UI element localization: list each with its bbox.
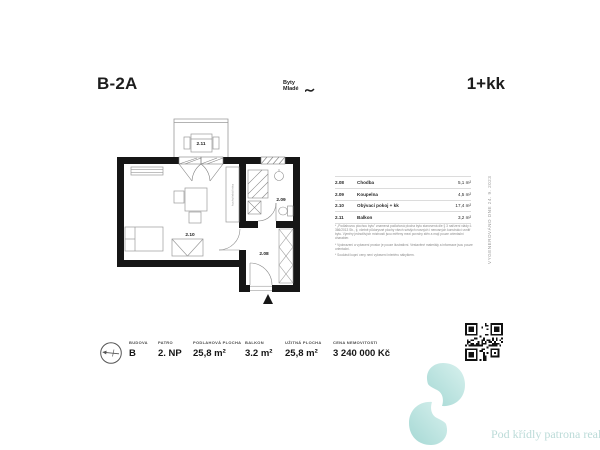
kitchen-counter: kuchyňská linka <box>226 167 239 222</box>
summary-uzitna-plocha: UŽITNÁ PLOCHA 25,8 m² <box>285 340 322 359</box>
room-label-balcony: 2.11 <box>196 141 205 147</box>
room-code: 2.08 <box>335 180 357 185</box>
summary-value: 3.2 m² <box>245 348 272 359</box>
summary-label: PODLAHOVÁ PLOCHA <box>193 340 241 345</box>
shower <box>248 170 268 198</box>
room-name: Obývací pokoj + kk <box>357 203 445 208</box>
room-area: 3,2 m² <box>445 215 471 220</box>
summary-value: B <box>129 348 148 359</box>
table-row: 2.11 Balkon 3,2 m² <box>335 211 471 224</box>
qr-code <box>465 323 503 361</box>
window <box>261 157 285 164</box>
table-row: 2.10 Obývací pokoj + kk 17,4 m² <box>335 200 471 212</box>
room-code: 2.10 <box>335 203 357 208</box>
room-name: Balkon <box>357 215 445 220</box>
watermark-logo-icon <box>398 362 476 446</box>
table-row: 2.09 Koupelna 4,5 m² <box>335 188 471 200</box>
brand-line2: Mladé <box>283 86 299 92</box>
room-area: 17,4 m² <box>445 203 471 208</box>
legend-footnotes: * „Podlahovou plochou bytu" znamená podl… <box>335 224 475 259</box>
summary-label: BUDOVA <box>129 340 148 345</box>
balcony-door <box>179 157 223 181</box>
room-code: 2.11 <box>335 215 357 220</box>
table-row: 2.08 Chodba 5,1 m² <box>335 176 471 188</box>
footnote: * Součástí kupní ceny není vybavení inte… <box>335 253 475 257</box>
room-name: Koupelna <box>357 192 445 197</box>
watermark-text: Pod křídly patrona reali <box>491 427 600 442</box>
toilet <box>279 206 293 216</box>
summary-budova: BUDOVA B <box>129 340 148 359</box>
summary-value: 2. NP <box>158 348 182 359</box>
footnote: * „Podlahovou plochou bytu" znamená podl… <box>335 224 475 241</box>
room-area: 5,1 m² <box>445 180 471 185</box>
room-legend-table: 2.08 Chodba 5,1 m² 2.09 Koupelna 4,5 m² … <box>335 176 471 224</box>
summary-value: 3 240 000 Kč <box>333 348 390 359</box>
summary-label: UŽITNÁ PLOCHA <box>285 340 322 345</box>
summary-label: BALKON <box>245 340 272 345</box>
wardrobe <box>172 239 203 256</box>
room-label-bathroom: 2.09 <box>276 197 286 203</box>
brand-swoosh-icon <box>305 87 317 94</box>
footnote: * Vyobrazení a vybavení prostor je pouze… <box>335 243 475 251</box>
brand-logo: Byty Mladé <box>283 80 299 92</box>
unit-id: B-2A <box>97 74 137 94</box>
summary-label: CENA NEMOVITOSTI <box>333 340 390 345</box>
dining-table <box>174 188 207 223</box>
room-code: 2.09 <box>335 192 357 197</box>
compass-icon <box>99 341 123 365</box>
disposition-label: 1+kk <box>465 74 505 94</box>
room-label-hall: 2.08 <box>259 251 269 257</box>
room-label-living: 2.10 <box>185 232 195 238</box>
room-name: Chodba <box>357 180 445 185</box>
radiator <box>131 167 163 175</box>
entrance-door <box>250 263 272 291</box>
entrance-arrow-icon <box>263 294 273 304</box>
summary-label: PATRO <box>158 340 182 345</box>
hall-closet <box>279 229 293 283</box>
sink <box>275 169 284 181</box>
kitchen-label: kuchyňská linka <box>231 184 235 206</box>
bed <box>125 227 163 251</box>
summary-value: 25,8 m² <box>285 348 322 359</box>
living-door <box>219 229 240 250</box>
summary-patro: PATRO 2. NP <box>158 340 182 359</box>
summary-balkon: BALKON 3.2 m² <box>245 340 272 359</box>
summary-value: 25,8 m² <box>193 348 241 359</box>
floor-plan: kuchyňská linka <box>95 105 310 310</box>
summary-cena: CENA NEMOVITOSTI 3 240 000 Kč <box>333 340 390 359</box>
summary-podlahova-plocha: PODLAHOVÁ PLOCHA 25,8 m² <box>193 340 241 359</box>
balcony <box>174 119 228 157</box>
generated-date-note: VYGENEROVÁNO DNE 24. 9. 2023 <box>487 172 492 264</box>
walls <box>117 157 300 292</box>
washing-machine <box>248 201 261 214</box>
room-area: 4,5 m² <box>445 192 471 197</box>
